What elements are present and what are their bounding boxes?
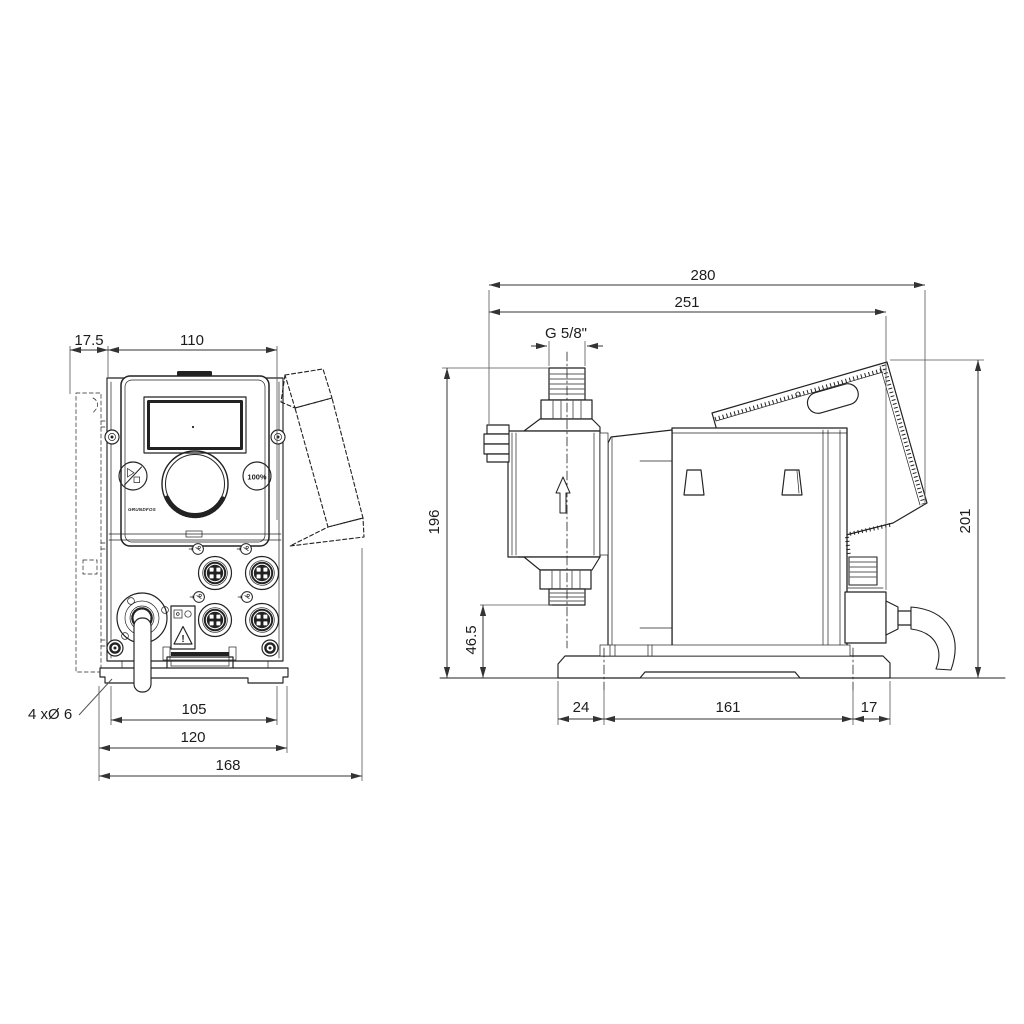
drain-tube — [134, 618, 151, 692]
suction-nut — [540, 570, 591, 589]
base-plate-side — [558, 656, 890, 678]
side-view — [440, 352, 1005, 690]
side-screw-left — [105, 430, 119, 444]
warning-mark: ! — [181, 634, 184, 645]
motor-adapter — [608, 430, 672, 655]
dim-depth-251: 251 — [674, 294, 699, 311]
dim-base-width-120: 120 — [180, 729, 205, 746]
side-screw-right — [271, 430, 285, 444]
capacity-button-label: 100% — [247, 473, 267, 482]
dosing-head-body — [508, 431, 600, 557]
dim-width-110: 110 — [180, 332, 204, 349]
power-cable — [911, 607, 955, 670]
dosing-head — [484, 352, 608, 648]
grundfos-logo: GRUNDFOS — [128, 507, 157, 512]
discharge-nut — [541, 400, 592, 419]
m12-connector-3[interactable] — [199, 604, 232, 637]
corner-screw-left — [107, 640, 123, 656]
deaeration-knob[interactable] — [484, 425, 509, 462]
m12-connector-2[interactable] — [246, 557, 279, 590]
corner-screw-right — [262, 640, 278, 656]
base-plate-front — [100, 668, 288, 683]
technical-drawing-page: 100% GRUNDFOS — [0, 0, 1024, 1024]
dim-height-196: 196 — [426, 509, 443, 534]
dim-overall-width-168: 168 — [215, 757, 240, 774]
dim-thread-g58: G 5/8" — [545, 325, 587, 342]
dim-base-length-161: 161 — [715, 699, 740, 716]
rating-label: ! — [171, 606, 195, 649]
dim-valve-clearance-46-5: 46.5 — [463, 625, 480, 654]
m12-connector-4[interactable] — [246, 604, 279, 637]
cable-gland-thread — [849, 557, 877, 585]
dim-bolt-spacing-105: 105 — [181, 701, 206, 718]
motor-housing — [672, 428, 849, 655]
base-rail-side — [600, 645, 850, 656]
display-cursor-dot — [192, 426, 194, 428]
dim-base-rear-17: 17 — [861, 699, 878, 716]
dim-mounting-holes-note: 4 xØ 6 — [28, 706, 72, 723]
power-plug-assembly — [845, 557, 955, 670]
dim-overall-height-201: 201 — [957, 508, 974, 533]
dim-base-front-24: 24 — [573, 699, 590, 716]
dim-offset-17-5: 17.5 — [74, 332, 103, 349]
front-view: 100% GRUNDFOS — [76, 369, 364, 692]
dosing-pump-dimensional-drawing: 100% GRUNDFOS — [0, 0, 1024, 1024]
mains-plug-body — [845, 592, 886, 643]
m12-connector-1[interactable] — [199, 557, 232, 590]
flipped-control-cube-hidden — [281, 369, 364, 546]
wall-mounting-plate — [76, 393, 107, 672]
dim-overall-depth-280: 280 — [690, 267, 715, 284]
